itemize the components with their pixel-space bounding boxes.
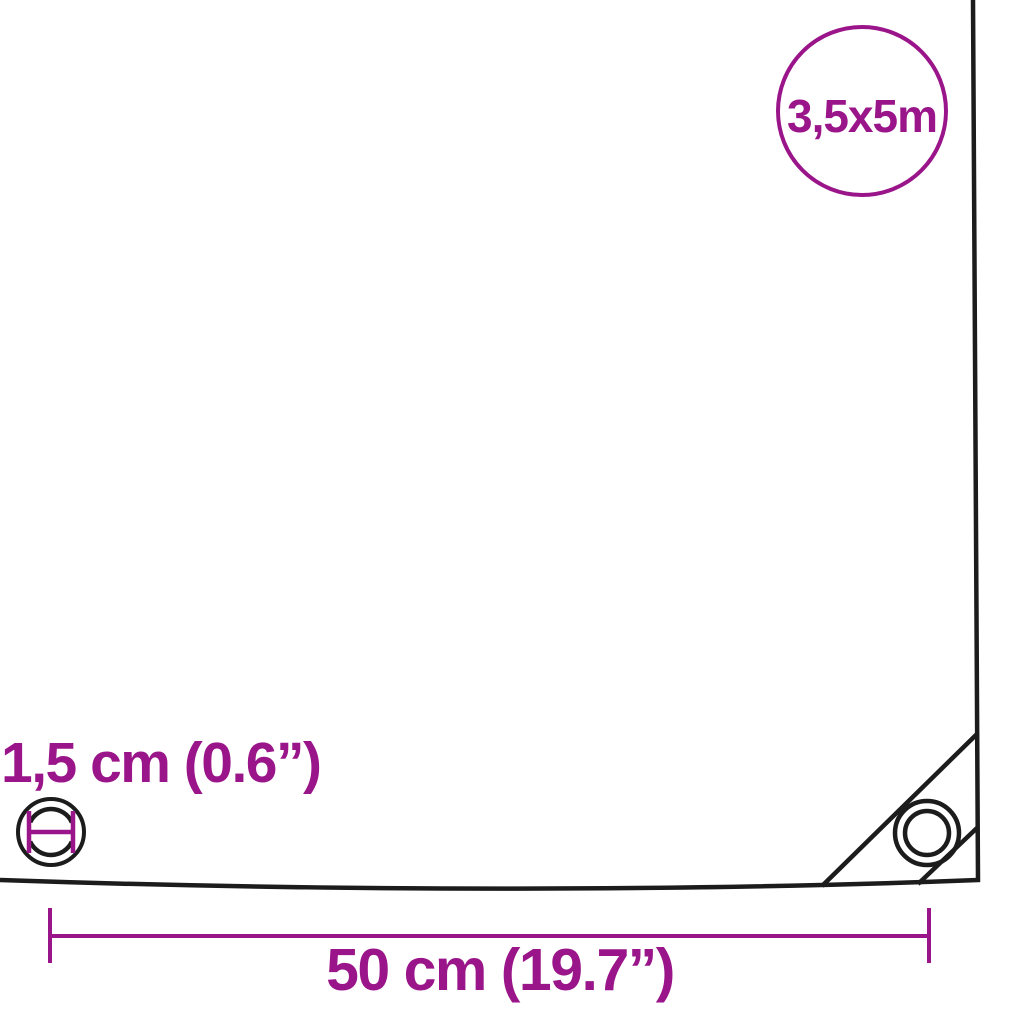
size-badge-label: 3,5x5m: [742, 93, 982, 139]
eyelet-diameter-label: 1,5 cm (0.6”): [1, 735, 321, 792]
product-dimension-diagram: 3,5x5m 1,5 cm (0.6”) 50 cm (19.7”): [0, 0, 1024, 1024]
eyelet-diameter-icon: [18, 799, 84, 865]
corner-eyelet-inner-ring: [905, 811, 949, 855]
corner-seam-lines: [822, 733, 978, 886]
width-dimension-label: 50 cm (19.7”): [200, 941, 800, 1000]
corner-eyelet-icon: [895, 801, 959, 865]
corner-seam-long-line: [822, 733, 978, 886]
tarp-diagram-canvas: [0, 0, 1024, 1024]
